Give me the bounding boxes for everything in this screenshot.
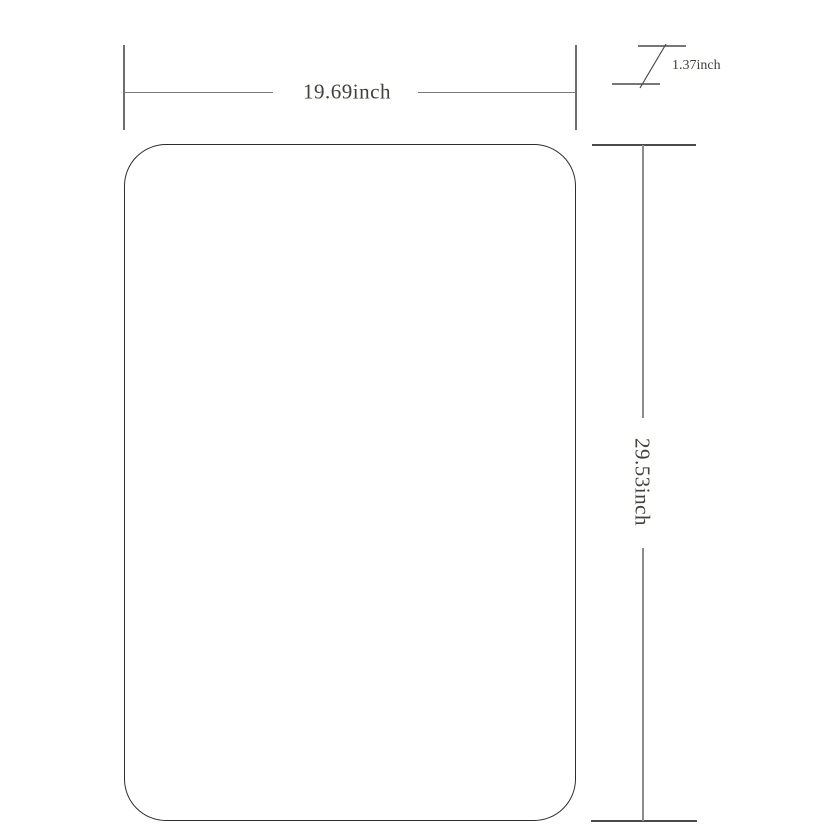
width-dimension-label: 19.69inch	[303, 80, 391, 105]
product-outline	[124, 144, 576, 821]
dimension-diagram: 19.69inch 29.53inch 1.37inch	[0, 0, 840, 840]
height-dimension-bottom-tick	[591, 820, 697, 822]
width-dimension-line-left	[124, 92, 273, 93]
width-dimension-right-tick	[575, 45, 577, 130]
height-dimension-top-tick	[592, 144, 696, 146]
height-dimension-label: 29.53inch	[630, 438, 655, 526]
height-dimension-line-lower	[642, 548, 644, 821]
thickness-dimension-label: 1.37inch	[672, 58, 721, 74]
height-dimension-line-upper	[642, 145, 644, 418]
width-dimension-left-tick	[123, 45, 125, 130]
width-dimension-line-right	[418, 92, 576, 93]
